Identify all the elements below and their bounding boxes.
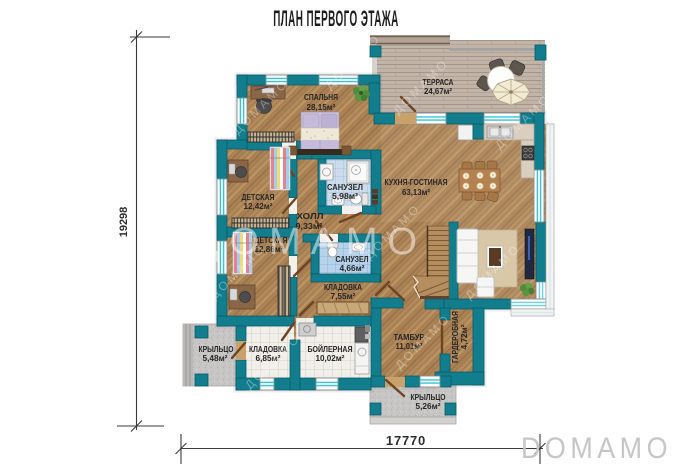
svg-text:ПЛАН ПЕРВОГО ЭТАЖА: ПЛАН ПЕРВОГО ЭТАЖА [273, 5, 399, 31]
svg-text:СПАЛЬНЯ: СПАЛЬНЯ [304, 92, 338, 102]
svg-text:DOMAMO: DOMAMO [521, 432, 672, 465]
svg-text:7,55м²: 7,55м² [331, 291, 356, 301]
svg-text:5,26м²: 5,26м² [416, 401, 441, 411]
svg-text:5,98м²: 5,98м² [332, 191, 358, 201]
svg-text:17770: 17770 [386, 433, 426, 448]
svg-text:5,48м²: 5,48м² [203, 353, 228, 363]
svg-text:19298: 19298 [118, 207, 130, 238]
svg-text:4,66м²: 4,66м² [340, 263, 365, 273]
svg-text:28,15м²: 28,15м² [307, 102, 336, 112]
svg-text:КУХНЯ-ГОСТИНАЯ: КУХНЯ-ГОСТИНАЯ [385, 177, 448, 187]
svg-text:12,42м²: 12,42м² [244, 201, 273, 211]
svg-text:10,02м²: 10,02м² [316, 353, 345, 363]
svg-text:4,72м²: 4,72м² [459, 324, 469, 349]
svg-text:ХОЛЛ: ХОЛЛ [297, 211, 324, 221]
svg-text:63,13м²: 63,13м² [402, 187, 430, 197]
